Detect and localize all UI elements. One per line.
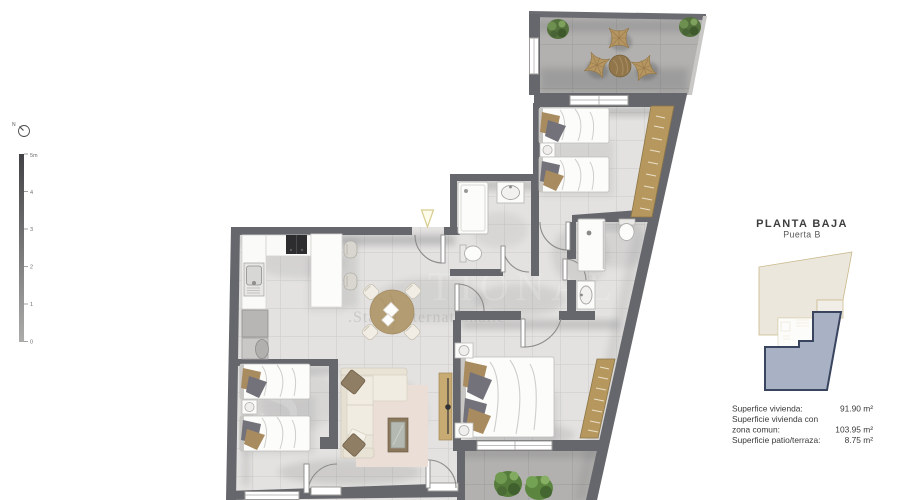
svg-text:Superficie patio/terraza:: Superficie patio/terraza: [732, 435, 820, 445]
svg-text:PLANTA BAJA: PLANTA BAJA [756, 218, 848, 230]
svg-text:0: 0 [30, 340, 33, 346]
svg-text:1: 1 [30, 302, 33, 308]
svg-text:Superfice vivienda:: Superfice vivienda: [732, 404, 803, 414]
svg-text:3: 3 [30, 227, 33, 233]
svg-text:2: 2 [30, 265, 33, 271]
svg-text:Puerta B: Puerta B [783, 230, 820, 240]
svg-text:8.75 m²: 8.75 m² [845, 435, 874, 445]
svg-text:zona comun:: zona comun: [732, 425, 780, 435]
svg-text:5m: 5m [30, 153, 38, 159]
svg-text:Superficie vivienda con: Superficie vivienda con [732, 414, 818, 424]
svg-text:4: 4 [30, 190, 33, 196]
svg-text:103.95 m²: 103.95 m² [835, 425, 873, 435]
svg-text:N: N [12, 122, 16, 128]
svg-text:91.90 m²: 91.90 m² [840, 404, 873, 414]
